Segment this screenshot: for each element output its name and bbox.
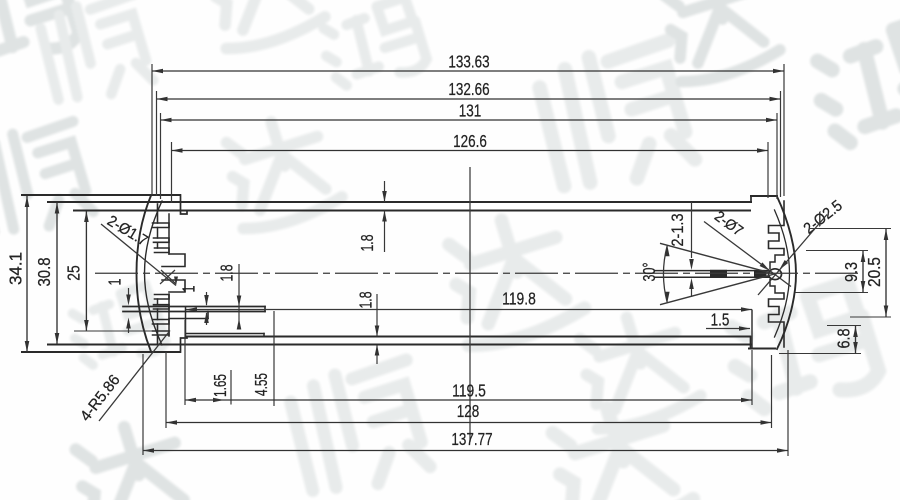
svg-text:34.1: 34.1 bbox=[6, 252, 26, 285]
svg-text:4.55: 4.55 bbox=[251, 373, 271, 396]
svg-text:1: 1 bbox=[179, 286, 199, 293]
svg-text:119.5: 119.5 bbox=[452, 381, 486, 401]
svg-text:1.8: 1.8 bbox=[217, 265, 237, 282]
svg-text:132.66: 132.66 bbox=[448, 79, 489, 99]
svg-text:2-1.3: 2-1.3 bbox=[669, 214, 687, 247]
svg-text:131: 131 bbox=[459, 101, 482, 121]
svg-text:126.6: 126.6 bbox=[453, 131, 487, 151]
svg-text:30.8: 30.8 bbox=[34, 258, 54, 287]
svg-text:133.63: 133.63 bbox=[448, 52, 489, 72]
svg-text:128: 128 bbox=[457, 401, 480, 421]
svg-text:1.5: 1.5 bbox=[711, 310, 730, 330]
svg-text:6.8: 6.8 bbox=[834, 329, 854, 349]
svg-text:25: 25 bbox=[64, 265, 84, 281]
svg-text:30°: 30° bbox=[639, 263, 659, 282]
svg-text:20.5: 20.5 bbox=[864, 257, 884, 287]
svg-text:1.65: 1.65 bbox=[210, 374, 230, 397]
svg-text:1.8: 1.8 bbox=[356, 292, 376, 309]
svg-text:1: 1 bbox=[105, 279, 125, 286]
svg-text:1.8: 1.8 bbox=[357, 235, 377, 252]
svg-text:9.3: 9.3 bbox=[841, 262, 861, 282]
svg-text:119.8: 119.8 bbox=[502, 289, 536, 309]
svg-text:137.77: 137.77 bbox=[451, 429, 492, 449]
